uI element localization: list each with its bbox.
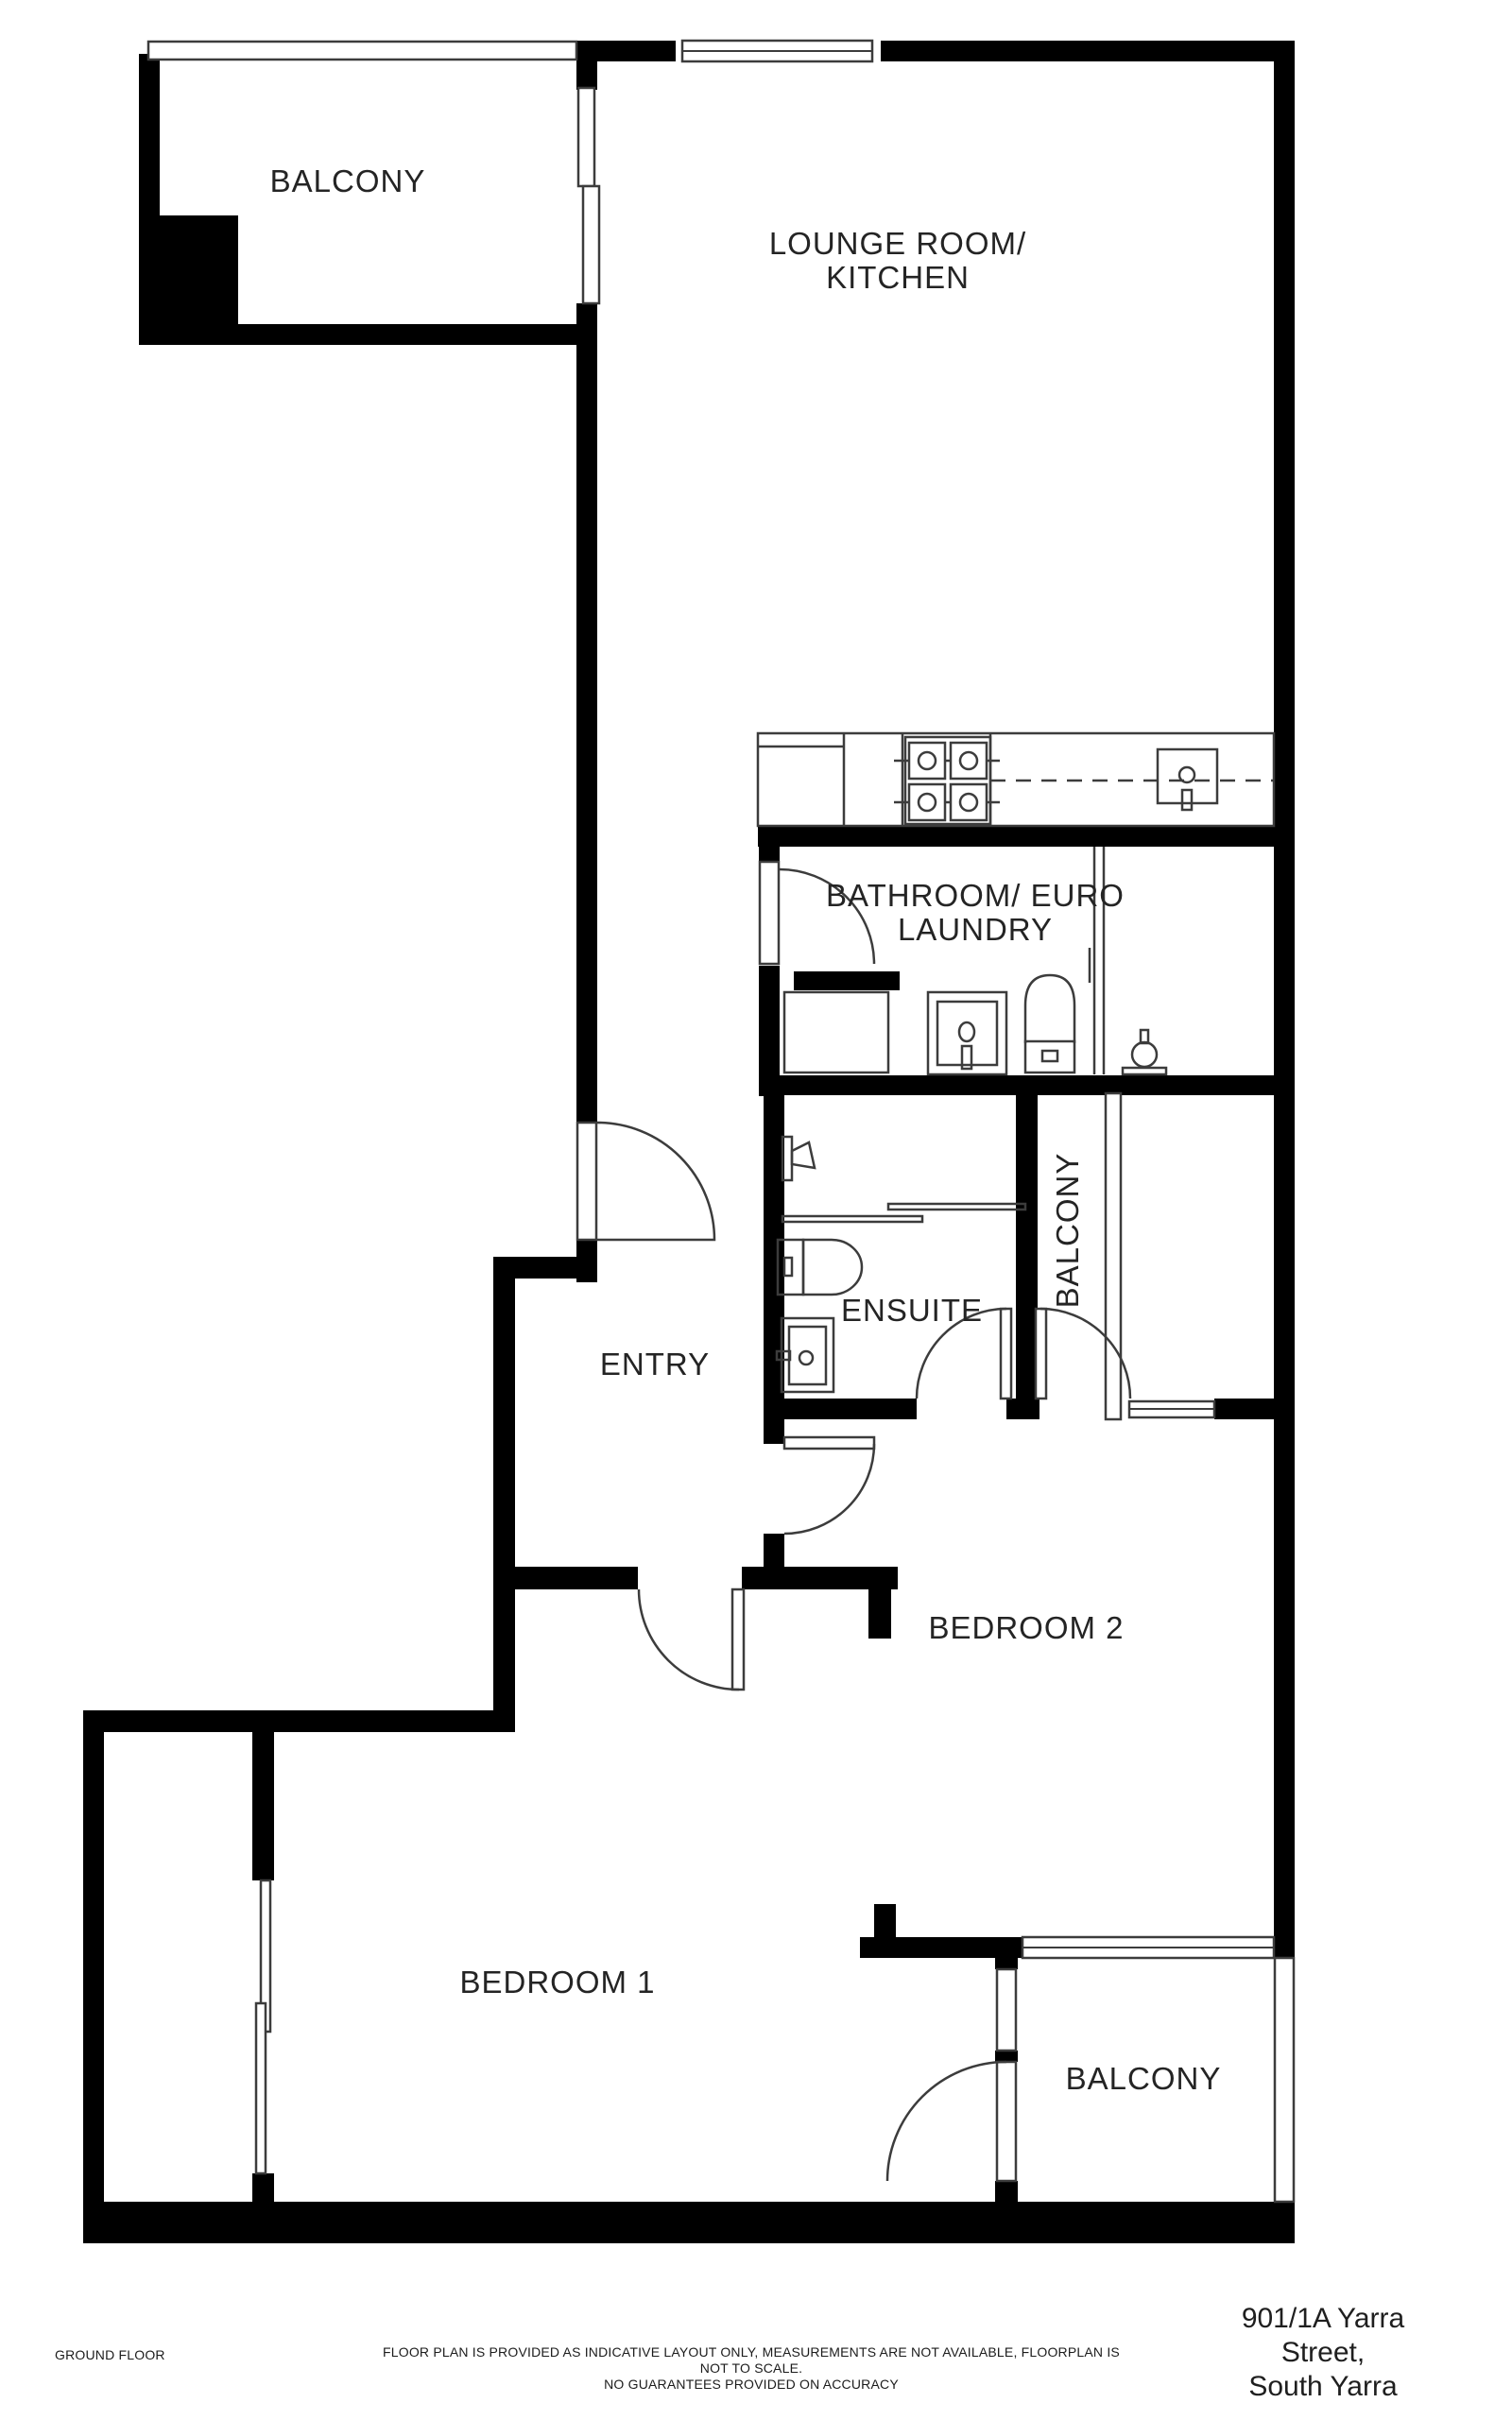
balcony-right-glazing [1106,1093,1121,1419]
floor-label: GROUND FLOOR [55,2347,165,2363]
bedroom1-door-leaf [732,1589,744,1690]
wall-hall-bottom-right [742,1567,898,1589]
wall-ensuite-bottom [764,1399,917,1419]
floor-plan-drawing [0,0,1512,2420]
wall-bottom-outer [83,2202,1295,2243]
wall-bathroom-alcove [794,971,900,990]
address: 901/1A Yarra Street, South Yarra [1228,2302,1417,2404]
bedroom1-door-swing [639,1589,739,1690]
bedroom2-balcony-door-leaf [1036,1309,1046,1399]
balcony-rail-window [148,42,576,60]
disclaimer-line-2: NO GUARANTEES PROVIDED ON ACCURACY [604,2377,899,2392]
wall-bedroom1-left [83,1710,104,2243]
room-label-bathroom-laundry: BATHROOM/ EUROLAUNDRY [826,879,1125,947]
ensuite-screen-b [782,1216,922,1222]
ensuite-fixtures [777,1137,1025,1392]
ensuite-door-leaf [1001,1309,1011,1399]
wall-right-outer [1274,41,1295,1958]
shower-head-icon [1123,1030,1166,1074]
wall-ensuite-balcony-divider [1016,1093,1038,1419]
wall-balcony-column-c [995,2181,1018,2202]
wall-kitchen-bottom [758,826,1295,847]
room-label-balcony-right: BALCONY [1051,1153,1085,1309]
wall-balcony-column-b [995,2051,1018,2062]
balcony-bottom-side-window [997,1969,1016,2051]
wall-bedroom-divider-top [868,1589,891,1639]
room-label-balcony-top-left: BALCONY [270,164,426,198]
wall-top-lounge-left [576,41,676,61]
laundry-alcove [784,992,888,1073]
cooktop-outline [905,737,990,824]
wall-bedroom1-inner-top [252,1732,274,1880]
room-label-text: BEDROOM 2 [928,1611,1124,1645]
room-label-text: LAUNDRY [826,913,1125,947]
wall-balcony-column-a [995,1958,1018,1969]
ensuite-vanity-icon [777,1318,833,1392]
room-label-text: BALCONY [270,164,426,198]
bedroom1-window-b [256,2003,266,2173]
wall-bedroom1-top [83,1710,515,1732]
room-label-text: BATHROOM/ EURO [826,879,1125,913]
balcony-bottom-door-leaf [997,2062,1016,2181]
room-label-lounge-kitchen: LOUNGE ROOM/KITCHEN [769,227,1026,295]
wall-bedroom2-top-right [1214,1399,1295,1419]
wall-bathroom-left-a [759,847,780,862]
wall-lounge-left [576,303,597,1123]
wall-balcony-corner-post [576,61,597,90]
wall-entry-step [493,1257,597,1279]
bathroom-basin-icon [928,992,1006,1074]
wall-bedroom-divider-stub [874,1904,896,1937]
address-line-1: 901/1A Yarra Street, [1228,2302,1417,2370]
entry-door-leaf [577,1123,596,1240]
room-label-bedroom-2: BEDROOM 2 [928,1611,1124,1645]
room-label-text: BALCONY [1051,1153,1085,1309]
doors [577,862,1130,2181]
room-label-text: ENSUITE [841,1294,983,1328]
lounge-left-window-a [578,88,594,186]
bathroom-toilet-icon [1025,975,1074,1073]
cooktop-icon [894,737,1000,824]
wall-bedroom1-inner-stub [252,2173,274,2202]
wall-bedroom2-bottom [860,1937,1022,1958]
lounge-left-window-b [583,186,599,303]
room-label-ensuite: ENSUITE [841,1294,983,1328]
ensuite-screen-a [888,1204,1025,1210]
disclaimer: FLOOR PLAN IS PROVIDED AS INDICATIVE LAY… [371,2344,1132,2393]
room-label-balcony-bottom: BALCONY [1066,2062,1222,2096]
room-label-text: BEDROOM 1 [459,1965,655,2000]
balcony-bottom-balustrade [1275,1958,1294,2202]
room-label-bedroom-1: BEDROOM 1 [459,1965,655,2000]
kitchen-fixtures [758,733,1274,826]
windows [148,41,1294,2202]
wall-bedroom2-top-mid [1006,1399,1039,1419]
wall-balcony-bottom [139,324,597,345]
room-label-text: LOUNGE ROOM/ [769,227,1026,261]
entry-door-swing [597,1123,714,1240]
bedroom2-door-swing [784,1444,874,1534]
disclaimer-line-1: FLOOR PLAN IS PROVIDED AS INDICATIVE LAY… [383,2344,1120,2376]
room-label-text: KITCHEN [769,261,1026,295]
wall-hall-bottom-left [515,1567,638,1589]
wall-balcony-left [139,54,160,326]
room-label-entry: ENTRY [600,1347,710,1382]
wall-top-lounge-right [881,41,1295,61]
ensuite-toilet-icon [778,1240,862,1295]
balcony-bottom-door-swing [887,2062,1006,2181]
bathroom-door-leaf [760,862,779,964]
room-label-text: ENTRY [600,1347,710,1382]
room-label-text: BALCONY [1066,2062,1222,2096]
floor-plan-page: BALCONY LOUNGE ROOM/KITCHEN BATHROOM/ EU… [0,0,1512,2420]
address-line-2: South Yarra [1228,2370,1417,2404]
bedroom2-door-leaf [784,1437,874,1449]
ensuite-shower-tap-icon [782,1137,815,1180]
wall-balcony-block [158,215,238,326]
wall-entry-left [493,1279,515,1732]
wall-bathroom-bottom [759,1075,1295,1095]
